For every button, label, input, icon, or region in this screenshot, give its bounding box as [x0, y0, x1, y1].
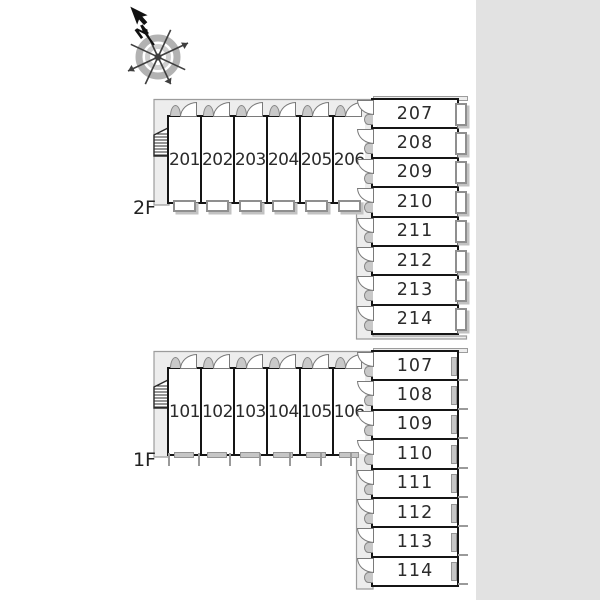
door-swing-small-icon	[364, 114, 373, 125]
door-swing-icon	[357, 558, 374, 573]
door-swing-icon	[279, 102, 296, 117]
balcony-window	[338, 200, 361, 212]
door-swing-small-icon	[364, 320, 373, 331]
terrace-divider	[229, 453, 231, 466]
room-number: 202	[202, 150, 233, 170]
room-102[interactable]: 102	[202, 369, 235, 454]
terrace-divider	[458, 525, 468, 527]
door-swing-icon	[357, 470, 374, 485]
room-number: 101	[169, 402, 200, 422]
room-number: 203	[235, 150, 266, 170]
door-swing-icon	[246, 354, 263, 369]
door-swing-icon	[357, 306, 374, 321]
room-number: 211	[397, 221, 433, 241]
window-strip	[451, 474, 457, 493]
room-107[interactable]: 107	[373, 352, 457, 381]
terrace-divider	[458, 467, 468, 469]
balcony-window	[272, 200, 295, 212]
room-205[interactable]: 205	[301, 117, 334, 202]
balcony-window	[455, 191, 467, 214]
terrace-divider	[289, 453, 291, 466]
room-number: 205	[301, 150, 332, 170]
door-swing-icon	[180, 354, 197, 369]
door-swing-small-icon	[364, 366, 373, 377]
room-row-block: 201202203204205206	[167, 115, 353, 204]
door-swing-small-icon	[364, 290, 373, 301]
door-swing-icon	[312, 102, 329, 117]
room-203[interactable]: 203	[235, 117, 268, 202]
door-swing-small-icon	[364, 572, 373, 583]
room-number: 111	[397, 473, 433, 493]
terrace-divider	[458, 379, 468, 381]
door-swing-small-icon	[364, 513, 373, 524]
room-number: 207	[397, 104, 433, 124]
room-201[interactable]: 201	[169, 117, 202, 202]
window-strip	[451, 386, 457, 405]
terrace-divider	[458, 437, 468, 439]
room-108[interactable]: 108	[373, 381, 457, 410]
room-number: 113	[397, 532, 433, 552]
floor-plan-canvas: N 20120220320420520620720820921021121221…	[0, 0, 600, 600]
balcony-window	[455, 132, 467, 155]
terrace-divider	[458, 408, 468, 410]
room-number: 112	[397, 503, 433, 523]
room-column-block: 207208209210211212213214	[371, 98, 459, 335]
terrace-divider	[458, 554, 468, 556]
room-number: 204	[268, 150, 299, 170]
balcony-window	[206, 200, 229, 212]
room-number: 208	[397, 133, 433, 153]
balcony-window	[455, 308, 467, 331]
balcony-window	[455, 250, 467, 273]
room-210[interactable]: 210	[373, 188, 457, 217]
room-number: 114	[397, 561, 433, 581]
room-209[interactable]: 209	[373, 159, 457, 188]
room-204[interactable]: 204	[268, 117, 301, 202]
room-101[interactable]: 101	[169, 369, 202, 454]
room-number: 110	[397, 444, 433, 464]
room-208[interactable]: 208	[373, 129, 457, 158]
terrace-divider	[198, 453, 200, 466]
floor-label-1f: 1F	[122, 449, 156, 471]
room-213[interactable]: 213	[373, 276, 457, 305]
door-swing-icon	[180, 102, 197, 117]
room-row-block: 101102103104105106	[167, 367, 353, 456]
canvas-margin-band	[476, 0, 600, 600]
room-212[interactable]: 212	[373, 247, 457, 276]
door-swing-icon	[357, 218, 374, 233]
room-207[interactable]: 207	[373, 100, 457, 129]
balcony-window	[455, 279, 467, 302]
door-swing-small-icon	[364, 173, 373, 184]
terrace-divider	[350, 453, 352, 466]
room-number: 103	[235, 402, 266, 422]
door-swing-icon	[246, 102, 263, 117]
room-110[interactable]: 110	[373, 440, 457, 469]
room-number: 108	[397, 385, 433, 405]
window-strip	[306, 452, 326, 458]
door-swing-small-icon	[364, 232, 373, 243]
room-number: 214	[397, 309, 433, 329]
window-strip	[451, 415, 457, 434]
room-202[interactable]: 202	[202, 117, 235, 202]
door-swing-small-icon	[364, 143, 373, 154]
terrace-divider	[458, 496, 468, 498]
door-swing-icon	[357, 276, 374, 291]
room-number: 102	[202, 402, 233, 422]
room-113[interactable]: 113	[373, 528, 457, 557]
balcony-window	[239, 200, 262, 212]
room-number: 210	[397, 192, 433, 212]
door-swing-small-icon	[364, 454, 373, 465]
room-114[interactable]: 114	[373, 558, 457, 585]
door-swing-icon	[213, 354, 230, 369]
door-swing-small-icon	[364, 202, 373, 213]
window-strip	[451, 445, 457, 464]
balcony-window	[173, 200, 196, 212]
compass-wheel	[128, 30, 188, 84]
window-strip	[451, 562, 457, 581]
room-number: 109	[397, 414, 433, 434]
balcony-window	[455, 161, 467, 184]
door-swing-small-icon	[364, 261, 373, 272]
door-swing-small-icon	[364, 542, 373, 553]
terrace-divider	[320, 453, 322, 466]
room-number: 107	[397, 356, 433, 376]
room-number: 213	[397, 280, 433, 300]
balcony-window	[455, 103, 467, 126]
room-105[interactable]: 105	[301, 369, 334, 454]
room-number: 104	[268, 402, 299, 422]
door-swing-icon	[357, 528, 374, 543]
room-column-block: 107108109110111112113114	[371, 350, 459, 587]
door-swing-small-icon	[364, 484, 373, 495]
window-strip	[174, 452, 194, 458]
door-swing-icon	[357, 499, 374, 514]
room-109[interactable]: 109	[373, 411, 457, 440]
room-103[interactable]: 103	[235, 369, 268, 454]
room-111[interactable]: 111	[373, 470, 457, 499]
terrace-divider	[259, 453, 261, 466]
room-104[interactable]: 104	[268, 369, 301, 454]
room-number: 201	[169, 150, 200, 170]
door-swing-icon	[213, 102, 230, 117]
window-strip	[240, 452, 260, 458]
room-number: 209	[397, 162, 433, 182]
door-swing-small-icon	[364, 425, 373, 436]
balcony-window	[455, 220, 467, 243]
terrace-divider	[458, 583, 468, 585]
terrace-divider	[168, 453, 170, 466]
room-211[interactable]: 211	[373, 218, 457, 247]
window-strip	[451, 357, 457, 376]
window-strip	[451, 533, 457, 552]
room-112[interactable]: 112	[373, 499, 457, 528]
window-strip	[207, 452, 227, 458]
room-214[interactable]: 214	[373, 306, 457, 333]
door-swing-icon	[312, 354, 329, 369]
balcony-window	[305, 200, 328, 212]
door-swing-icon	[279, 354, 296, 369]
floor-label-2f: 2F	[122, 197, 156, 219]
window-strip	[451, 504, 457, 523]
room-number: 212	[397, 251, 433, 271]
compass-rose: N	[120, 0, 204, 98]
room-number: 105	[301, 402, 332, 422]
door-swing-small-icon	[364, 395, 373, 406]
door-swing-icon	[357, 247, 374, 262]
